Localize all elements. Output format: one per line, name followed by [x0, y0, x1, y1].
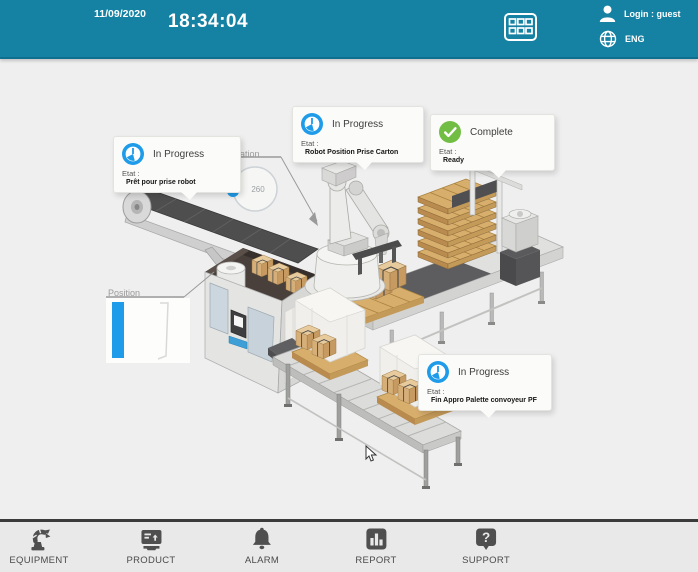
machine-icon — [137, 526, 165, 553]
globe-icon — [599, 30, 617, 48]
menu-grid-icon[interactable] — [504, 13, 537, 41]
etat-label: Etat : — [427, 387, 543, 396]
status-callout-complete: Complete Etat : Ready — [430, 114, 555, 171]
robot-arm-icon — [25, 526, 53, 553]
status-callout-robot: In Progress Etat : Robot Position Prise … — [292, 106, 424, 163]
nav-report[interactable]: REPORT — [355, 526, 396, 566]
callout-status: In Progress — [153, 149, 204, 160]
language-button[interactable]: ENG — [599, 30, 645, 48]
header-bar: 11/09/2020 18:34:04 Login : guest — [0, 0, 698, 59]
nav-label: ALARM — [245, 555, 279, 566]
position-bar — [112, 302, 124, 358]
etat-label: Etat : — [301, 139, 415, 148]
etat-label: Etat : — [439, 147, 546, 156]
nav-label: SUPPORT — [462, 555, 510, 566]
etat-value: Fin Appro Palette convoyeur PF — [431, 397, 543, 404]
login-button[interactable]: Login : guest — [599, 5, 681, 23]
nav-alarm[interactable]: ALARM — [245, 526, 279, 566]
nav-equipment[interactable]: EQUIPMENT — [9, 526, 68, 566]
question-bubble-icon: ? — [472, 526, 500, 553]
svg-text:?: ? — [482, 530, 490, 545]
header-date: 11/09/2020 — [94, 8, 146, 20]
position-label: Position — [108, 288, 140, 298]
callout-status: In Progress — [458, 367, 509, 378]
etat-label: Etat : — [122, 169, 232, 178]
status-callout-pallet: In Progress Etat : Fin Appro Palette con… — [418, 354, 552, 411]
nav-label: REPORT — [355, 555, 396, 566]
etat-value: Ready — [443, 157, 546, 164]
nav-label: EQUIPMENT — [9, 555, 68, 566]
bell-icon — [248, 526, 276, 553]
nav-support[interactable]: ? SUPPORT — [462, 526, 510, 566]
hmi-app: 11/09/2020 18:34:04 Login : guest — [0, 0, 698, 572]
callout-tail — [489, 169, 507, 178]
callout-tail — [355, 161, 373, 170]
callout-tail — [180, 191, 198, 200]
etat-value: Robot Position Prise Carton — [305, 149, 415, 156]
in-progress-clock-icon — [122, 143, 144, 165]
etat-value: Prêt pour prise robot — [126, 179, 232, 186]
status-callout-infeed: In Progress Etat : Prêt pour prise robot — [113, 136, 241, 193]
callout-tail — [479, 409, 497, 418]
rotation-value: 260 — [251, 185, 265, 194]
login-label: Login : guest — [624, 9, 681, 19]
callout-status: Complete — [470, 127, 513, 138]
main-view: 260 Rotation Position In Progress — [0, 59, 698, 519]
complete-check-icon — [439, 121, 461, 143]
in-progress-clock-icon — [427, 361, 449, 383]
mouse-cursor — [366, 446, 376, 461]
bar-chart-icon — [362, 526, 390, 553]
language-label: ENG — [625, 34, 645, 44]
nav-label: PRODUCT — [126, 555, 175, 566]
header-clock: 18:34:04 — [168, 11, 248, 33]
callout-status: In Progress — [332, 119, 383, 130]
user-icon — [599, 5, 616, 23]
bottom-nav: EQUIPMENT PRODUCT ALARM — [0, 519, 698, 572]
nav-product[interactable]: PRODUCT — [126, 526, 175, 566]
in-progress-clock-icon — [301, 113, 323, 135]
